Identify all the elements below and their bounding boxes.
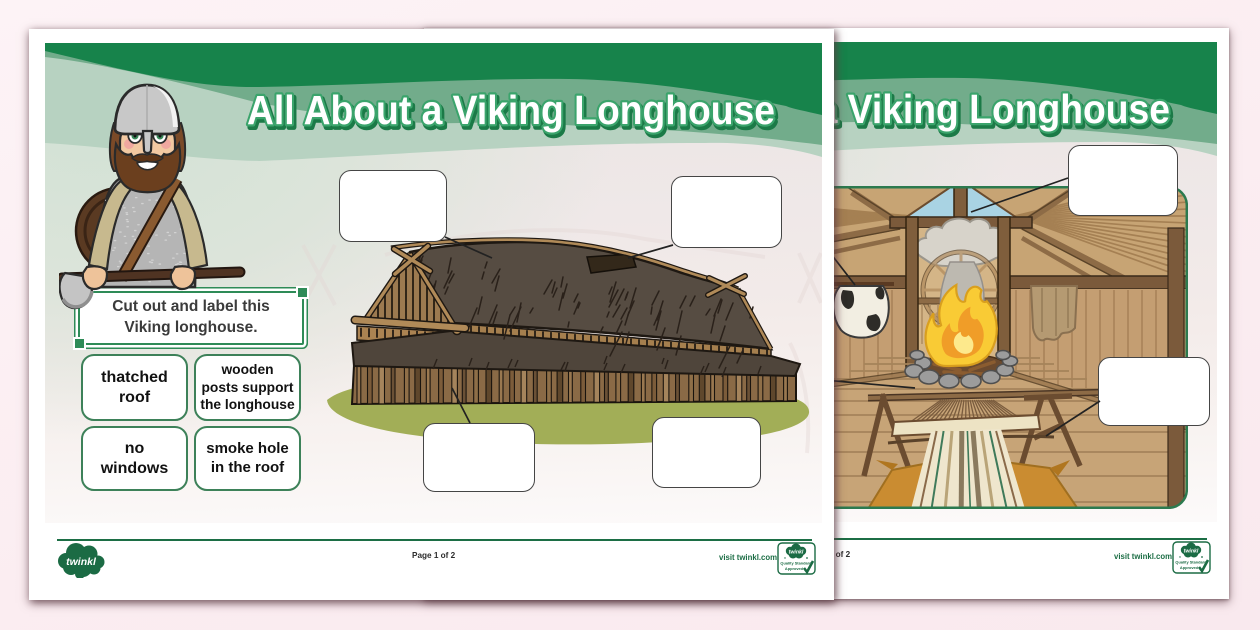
- svg-text:twinkl: twinkl: [66, 556, 97, 568]
- svg-text:Approved: Approved: [1180, 565, 1199, 570]
- svg-text:twinkl: twinkl: [789, 550, 804, 556]
- svg-text:twinkl: twinkl: [1184, 549, 1199, 555]
- svg-text:Approved: Approved: [785, 566, 804, 571]
- svg-text:Quality Standard: Quality Standard: [1175, 560, 1207, 565]
- svg-text:Quality Standard: Quality Standard: [780, 561, 812, 566]
